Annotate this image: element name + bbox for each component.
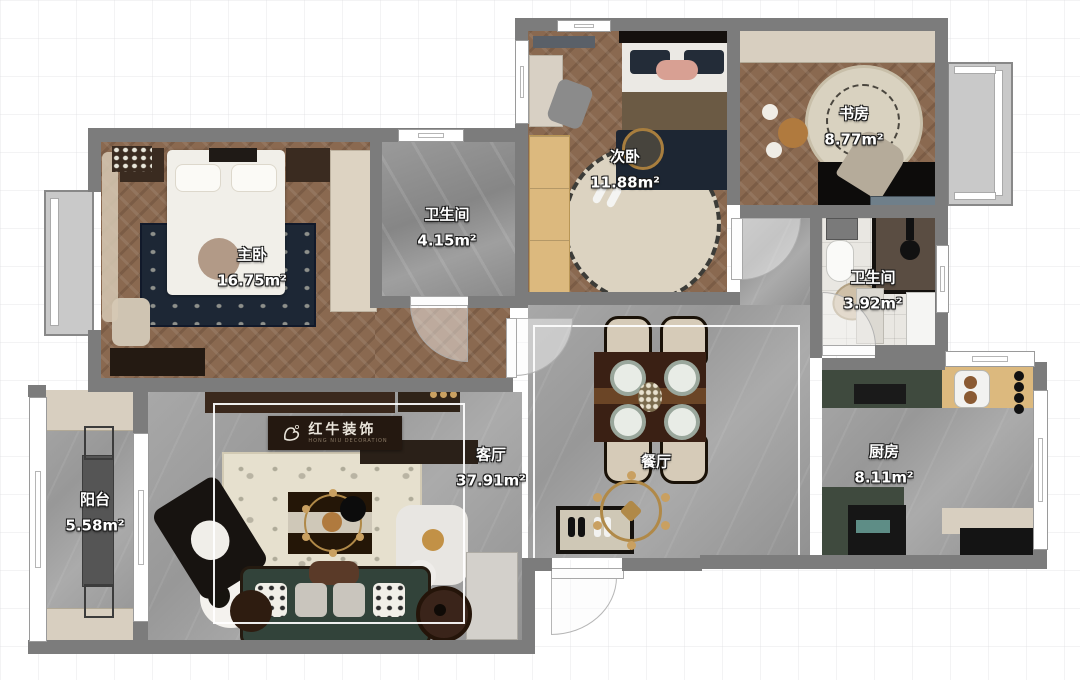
bay-window-study — [947, 62, 1013, 206]
wall — [700, 555, 1047, 569]
room-name: 主卧 — [217, 243, 287, 269]
wall — [468, 296, 528, 308]
room-name: 次卧 — [590, 145, 660, 171]
wall — [810, 218, 822, 358]
corridor-door — [506, 318, 517, 378]
master-dresser — [110, 348, 205, 376]
sink-basin — [964, 376, 977, 389]
wall — [88, 142, 101, 192]
window-bath2-right — [936, 245, 949, 313]
study-pouf — [762, 104, 778, 120]
window-second-left — [515, 40, 529, 124]
wall — [622, 558, 702, 571]
bay-window-sill — [954, 66, 996, 74]
fridge — [960, 528, 1033, 555]
label-master-bedroom: 主卧 16.75m² — [217, 243, 287, 294]
bay-window-glass — [50, 198, 59, 326]
pillow — [231, 164, 277, 192]
room-name: 厨房 — [854, 440, 913, 466]
dining-ceiling-line — [533, 325, 800, 560]
pillow-pink — [656, 60, 698, 80]
wall — [740, 205, 947, 218]
room-area: 8.11m² — [854, 465, 913, 491]
bay-window-glass — [994, 70, 1003, 196]
window-balcony-left — [29, 397, 47, 642]
label-dining: 餐厅 — [641, 449, 671, 475]
cooktop — [854, 384, 906, 404]
entrance-door — [551, 568, 624, 579]
entrance-door-swing — [551, 577, 617, 635]
room-area: 8.77m² — [824, 127, 883, 153]
kitchen-sink-teal — [856, 520, 890, 533]
study-pouf — [766, 142, 782, 158]
nightstand-right — [286, 148, 330, 182]
shower-head-icon — [900, 240, 920, 260]
label-living: 客厅 37.91m² — [456, 443, 526, 494]
wall — [133, 620, 148, 654]
study-side-table — [778, 118, 808, 148]
room-area: 37.91m² — [456, 468, 526, 494]
second-bedroom-door — [731, 218, 743, 280]
wall — [133, 385, 148, 433]
wall — [1033, 362, 1047, 390]
pillow — [175, 164, 221, 192]
wall — [875, 345, 948, 358]
sliding-door-balcony — [133, 433, 149, 622]
room-name: 客厅 — [456, 443, 526, 469]
second-wardrobe — [529, 135, 570, 293]
shower-valve-icon — [906, 218, 914, 240]
floorplan-canvas: 红牛装饰 HONG NIU DECORATION — [0, 0, 1080, 680]
bay-window-sill — [954, 192, 996, 200]
room-area: 5.58m² — [65, 513, 124, 539]
window-bath1-top — [398, 129, 464, 142]
label-second-bedroom: 次卧 11.88m² — [590, 145, 660, 196]
headboard — [619, 31, 737, 43]
bathroom2-door — [822, 345, 876, 356]
label-kitchen: 厨房 8.11m² — [854, 440, 913, 491]
wall — [727, 31, 740, 205]
kitchen-counter-wood — [942, 366, 1033, 408]
plant — [112, 146, 152, 172]
wall — [822, 358, 945, 370]
label-bathroom1: 卫生间 4.15m² — [417, 203, 476, 254]
kitchen-counter-top — [822, 370, 942, 408]
room-name: 卫生间 — [417, 203, 476, 229]
corner-cabinet — [466, 552, 518, 640]
room-area: 4.15m² — [417, 228, 476, 254]
wall — [535, 558, 552, 571]
rack-frame — [84, 426, 114, 460]
window-kitchen-top — [945, 351, 1035, 367]
wall — [370, 142, 382, 308]
room-area: 3.92m² — [843, 291, 902, 317]
living-ceiling-line — [213, 403, 465, 624]
balcony-cabinet-top — [46, 390, 133, 431]
label-balcony: 阳台 5.58m² — [65, 488, 124, 539]
room-name: 书房 — [824, 102, 883, 128]
label-study: 书房 8.77m² — [824, 102, 883, 153]
room-name: 卫生间 — [843, 266, 902, 292]
bathroom1-door — [410, 296, 470, 306]
curtain — [102, 152, 118, 322]
ac-unit — [533, 36, 595, 48]
room-name: 阳台 — [65, 488, 124, 514]
headboard — [209, 148, 257, 162]
rack-frame — [84, 584, 114, 618]
wall — [935, 18, 948, 208]
study-cabinet — [740, 31, 935, 63]
wall — [88, 378, 513, 392]
window-kitchen-right — [1033, 390, 1048, 550]
wall — [28, 385, 46, 397]
window-second-top — [557, 20, 611, 32]
wall — [515, 292, 740, 305]
sink-basin — [964, 391, 977, 404]
stove-knobs-icon — [1014, 371, 1024, 381]
room-name: 餐厅 — [641, 449, 671, 475]
blanket-brown — [622, 92, 734, 130]
room-area: 16.75m² — [217, 268, 287, 294]
wall — [28, 640, 535, 654]
wall — [370, 296, 410, 308]
room-area: 11.88m² — [590, 170, 660, 196]
label-bathroom2: 卫生间 3.92m² — [843, 266, 902, 317]
washing-machine — [826, 218, 858, 240]
decor-dots — [430, 391, 437, 398]
